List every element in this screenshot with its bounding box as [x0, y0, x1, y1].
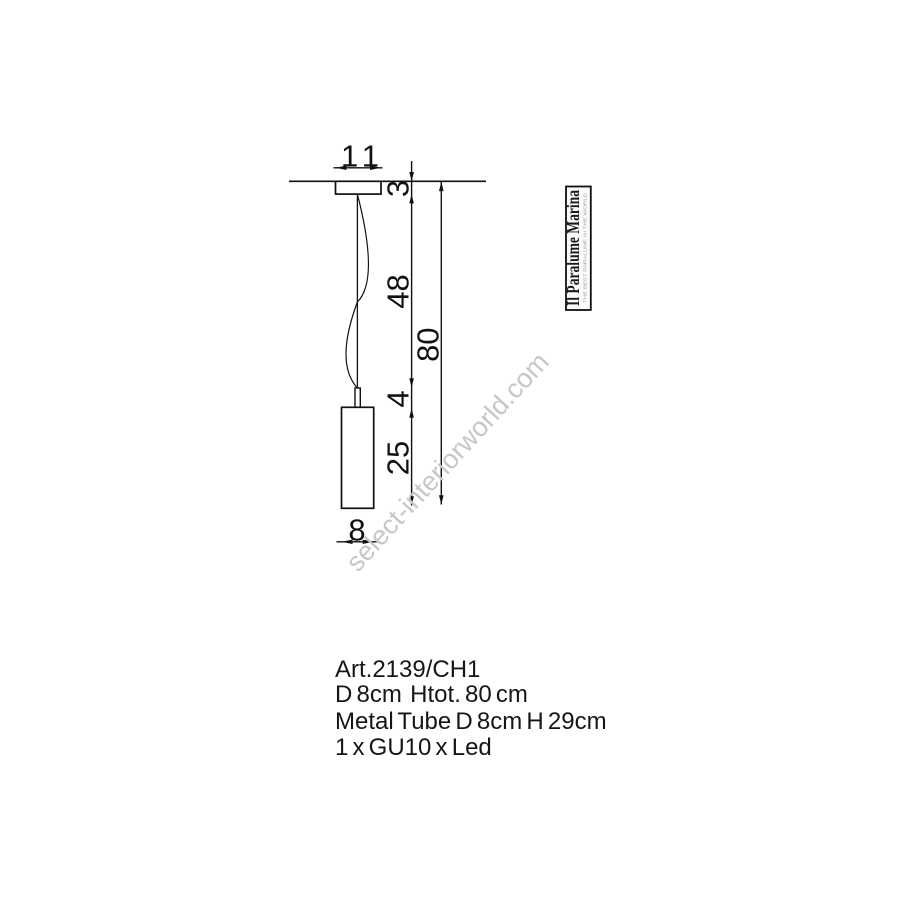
svg-text:48: 48	[381, 274, 416, 308]
svg-text:Il Paralume Marina: Il Paralume Marina	[563, 190, 583, 306]
svg-text:THE BEST PARALUME IN THE WORLD: THE BEST PARALUME IN THE WORLD	[583, 192, 589, 303]
svg-text:4: 4	[381, 390, 416, 407]
svg-text:3: 3	[381, 180, 416, 197]
svg-text:80: 80	[411, 327, 446, 361]
svg-text:25: 25	[381, 441, 416, 475]
